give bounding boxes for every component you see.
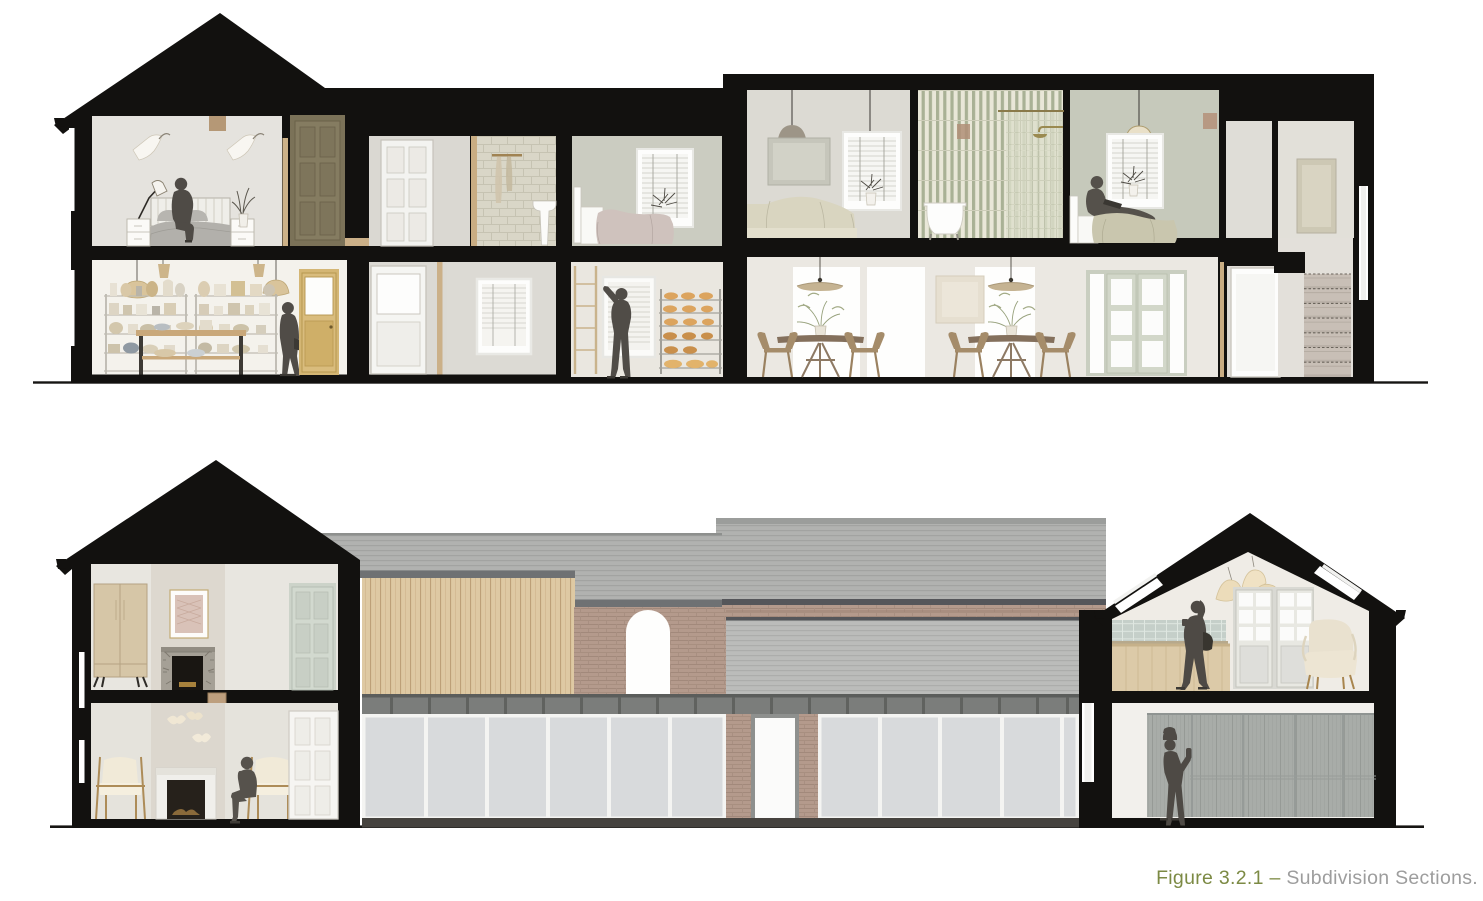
svg-text:Figure 3.2.1 – Subdivision Sec: Figure 3.2.1 – Subdivision Sections. — [1156, 867, 1478, 889]
